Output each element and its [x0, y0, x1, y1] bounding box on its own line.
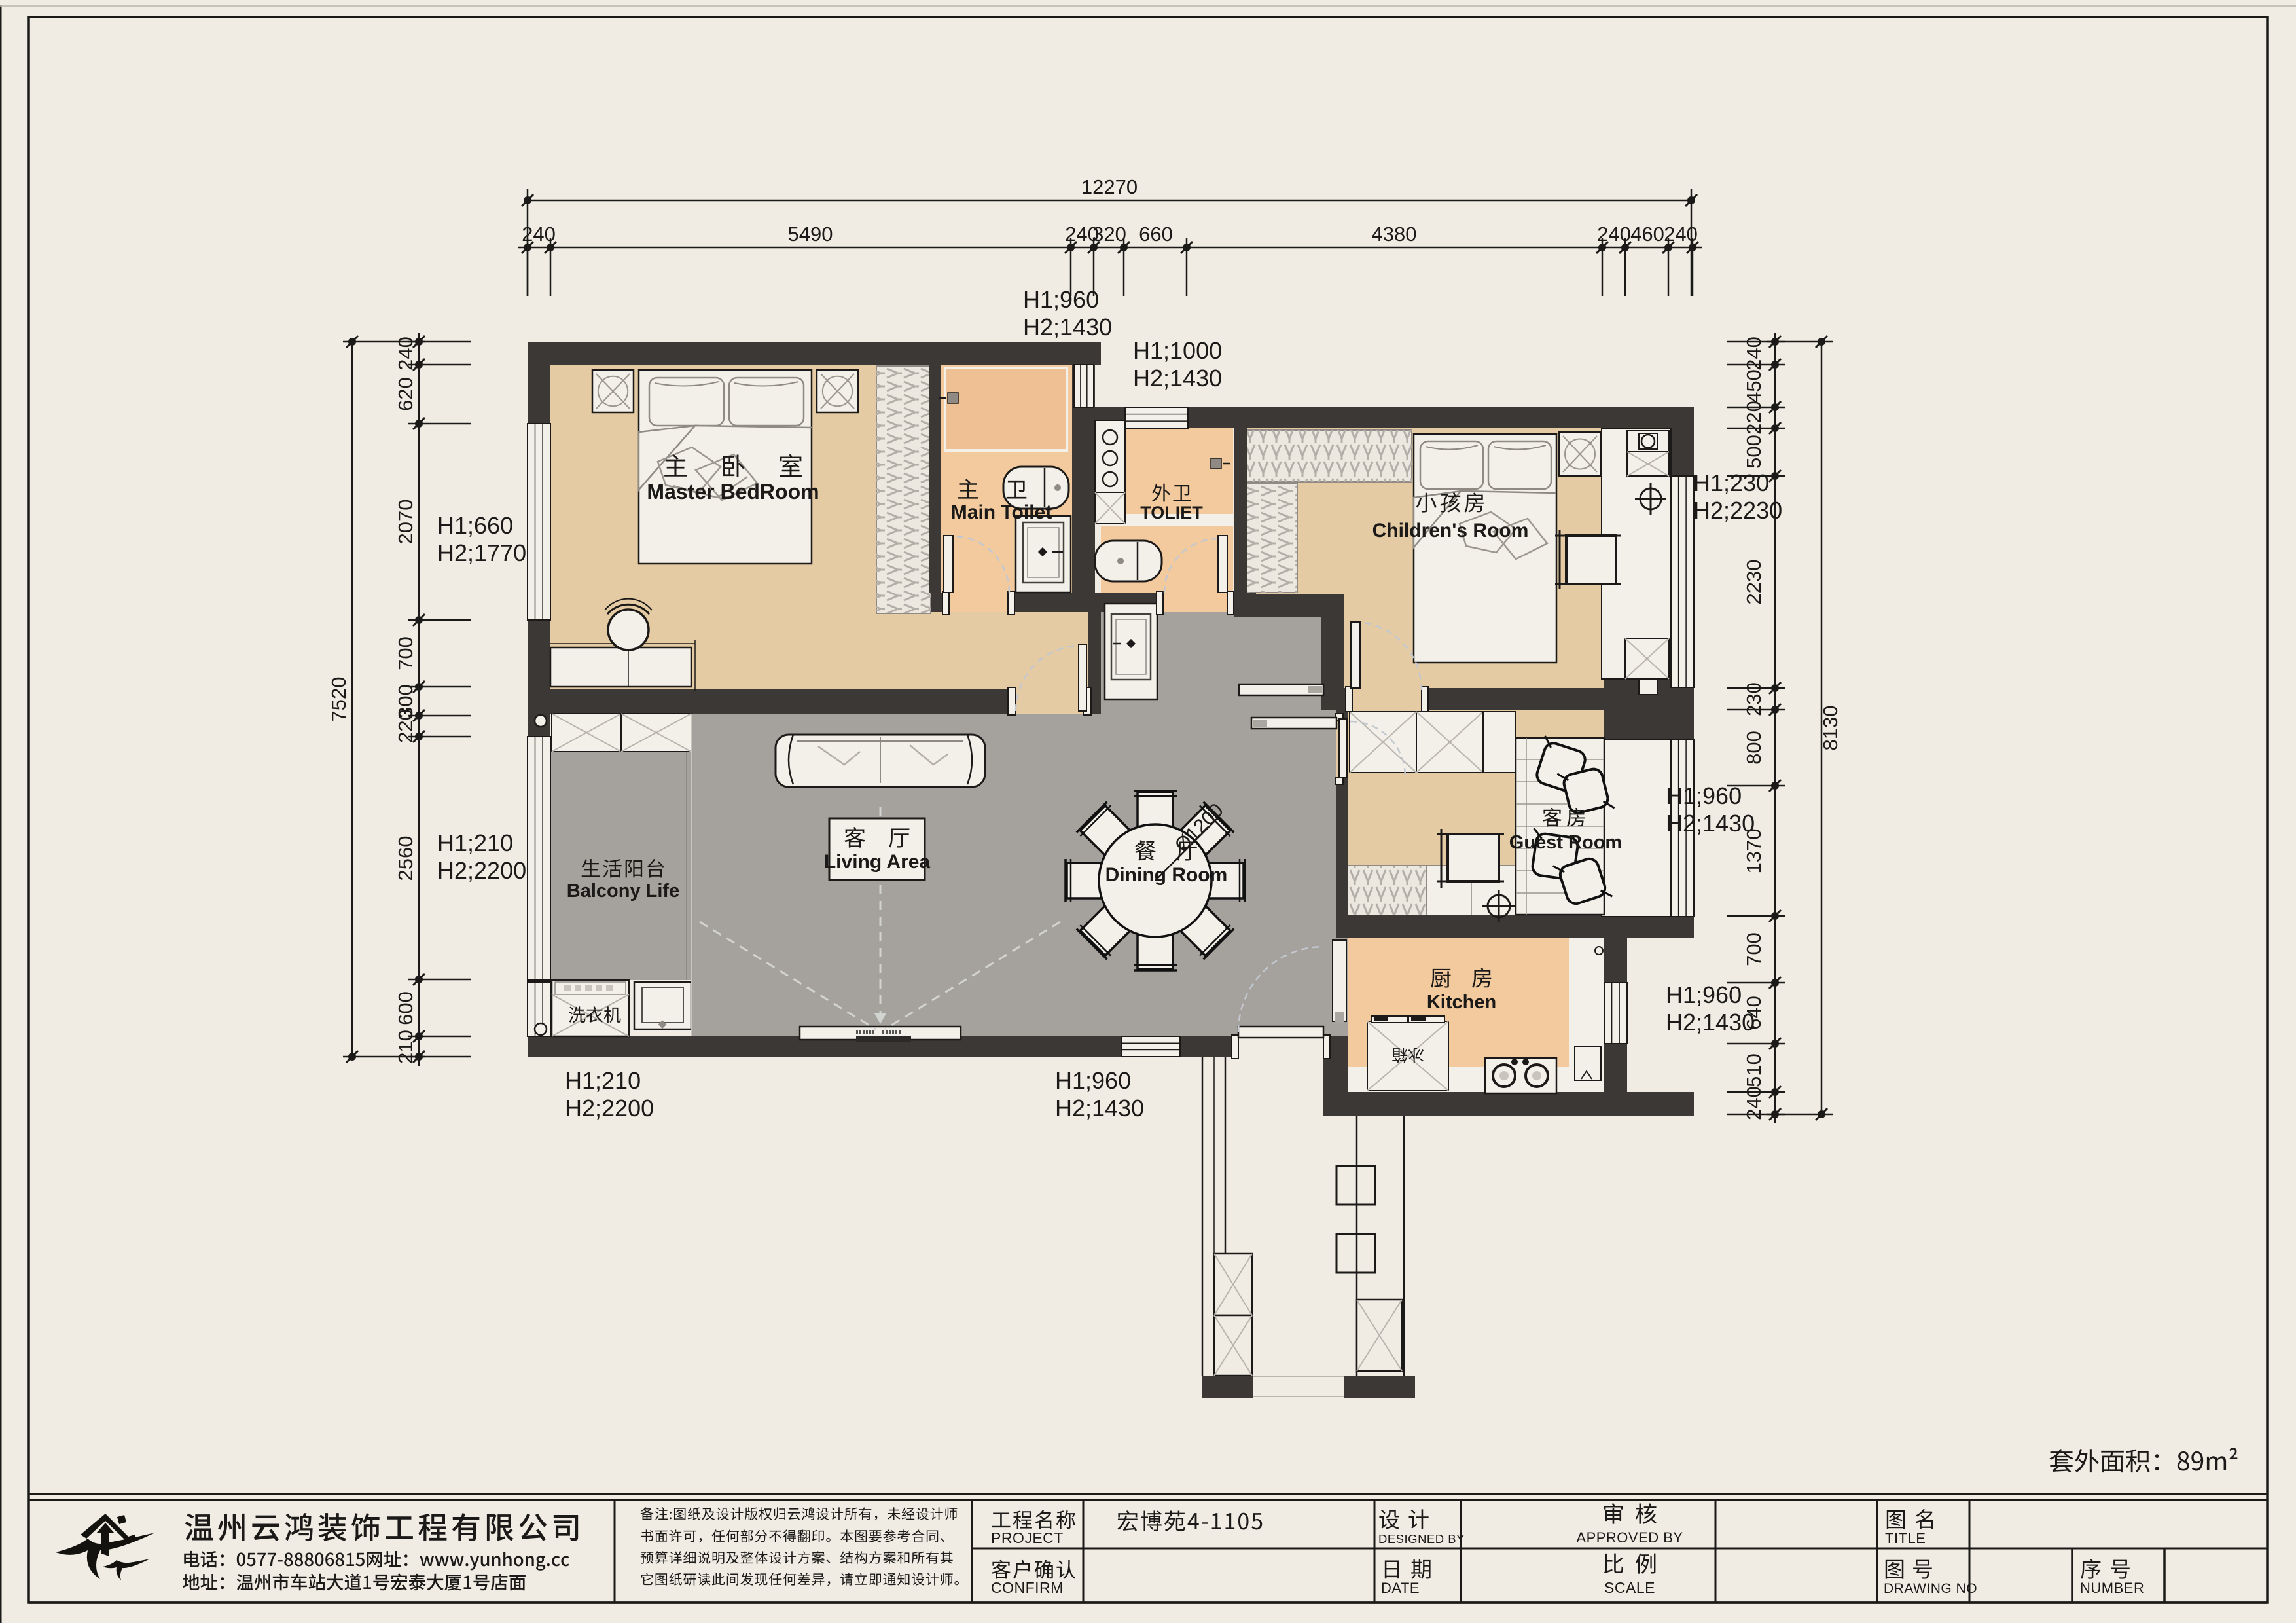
- svg-text:H2;1430: H2;1430: [1055, 1095, 1144, 1122]
- svg-text:APPROVED BY: APPROVED BY: [1576, 1529, 1683, 1546]
- svg-text:2070: 2070: [394, 500, 417, 545]
- svg-text:NUMBER: NUMBER: [2080, 1580, 2144, 1596]
- svg-text:H1;960: H1;960: [1055, 1067, 1131, 1094]
- svg-text:7520: 7520: [327, 677, 350, 722]
- svg-text:DESIGNED BY: DESIGNED BY: [1378, 1532, 1465, 1546]
- svg-text:700: 700: [394, 636, 417, 670]
- svg-text:Kitchen: Kitchen: [1427, 992, 1496, 1013]
- svg-text:2230: 2230: [1742, 560, 1765, 605]
- svg-text:TITLE: TITLE: [1885, 1530, 1926, 1546]
- svg-text:210: 210: [394, 1030, 417, 1064]
- svg-text:H1;960: H1;960: [1023, 286, 1099, 313]
- svg-text:H2;2200: H2;2200: [437, 857, 526, 884]
- svg-text:240: 240: [1742, 337, 1765, 371]
- svg-text:240: 240: [522, 223, 556, 246]
- svg-text:2560: 2560: [394, 836, 417, 881]
- svg-text:H2;1430: H2;1430: [1023, 314, 1112, 340]
- svg-text:H1;210: H1;210: [565, 1067, 641, 1094]
- svg-text:4380: 4380: [1372, 223, 1417, 246]
- svg-text:450: 450: [1742, 369, 1765, 403]
- svg-text:600: 600: [394, 991, 417, 1025]
- svg-text:Main Toilet: Main Toilet: [951, 501, 1052, 523]
- svg-text:H2;1430: H2;1430: [1133, 365, 1222, 392]
- svg-text:12270: 12270: [1081, 175, 1138, 198]
- svg-text:CONFIRM: CONFIRM: [991, 1579, 1064, 1596]
- svg-text:220: 220: [394, 709, 417, 743]
- svg-text:Children's Room: Children's Room: [1372, 520, 1529, 541]
- svg-text:H1;230: H1;230: [1693, 469, 1769, 496]
- svg-text:800: 800: [1742, 731, 1765, 765]
- svg-text:PROJECT: PROJECT: [991, 1529, 1064, 1546]
- svg-text:H2;1430: H2;1430: [1666, 810, 1755, 837]
- svg-text:510: 510: [1742, 1053, 1765, 1087]
- svg-text:TOLIET: TOLIET: [1140, 503, 1203, 522]
- svg-text:Balcony Life: Balcony Life: [567, 881, 679, 902]
- svg-text:700: 700: [1742, 932, 1765, 966]
- svg-text:H1;210: H1;210: [437, 830, 513, 856]
- svg-text:240: 240: [1664, 223, 1698, 246]
- svg-text:8130: 8130: [1819, 706, 1842, 751]
- svg-text:5490: 5490: [788, 223, 833, 246]
- svg-text:Dining Room: Dining Room: [1105, 864, 1228, 886]
- svg-text:660: 660: [1139, 223, 1173, 246]
- svg-text:500: 500: [1742, 435, 1765, 469]
- svg-text:H1;660: H1;660: [437, 512, 513, 539]
- svg-text:240: 240: [394, 337, 417, 371]
- svg-text:240: 240: [1597, 223, 1631, 246]
- svg-text:H1;1000: H1;1000: [1133, 337, 1222, 364]
- svg-text:240: 240: [1742, 1086, 1765, 1120]
- svg-text:H2;2230: H2;2230: [1693, 497, 1782, 524]
- svg-text:DATE: DATE: [1381, 1580, 1420, 1596]
- svg-text:230: 230: [1742, 682, 1765, 716]
- svg-text:H2;2200: H2;2200: [565, 1095, 654, 1122]
- svg-text:DRAWING NO: DRAWING NO: [1884, 1581, 1977, 1596]
- svg-text:Guest Room: Guest Room: [1509, 832, 1622, 853]
- svg-text:Master BedRoom: Master BedRoom: [647, 480, 819, 503]
- svg-text:460: 460: [1630, 223, 1664, 246]
- svg-text:320: 320: [1092, 223, 1126, 246]
- svg-text:220: 220: [1742, 401, 1765, 435]
- svg-text:H2;1770: H2;1770: [437, 539, 526, 566]
- svg-text:H1;960: H1;960: [1666, 782, 1742, 809]
- svg-text:H1;960: H1;960: [1666, 981, 1742, 1008]
- svg-text:H2;1430: H2;1430: [1666, 1009, 1755, 1036]
- svg-text:Living Area: Living Area: [824, 851, 931, 873]
- svg-text:SCALE: SCALE: [1604, 1579, 1655, 1596]
- svg-text:620: 620: [394, 377, 417, 411]
